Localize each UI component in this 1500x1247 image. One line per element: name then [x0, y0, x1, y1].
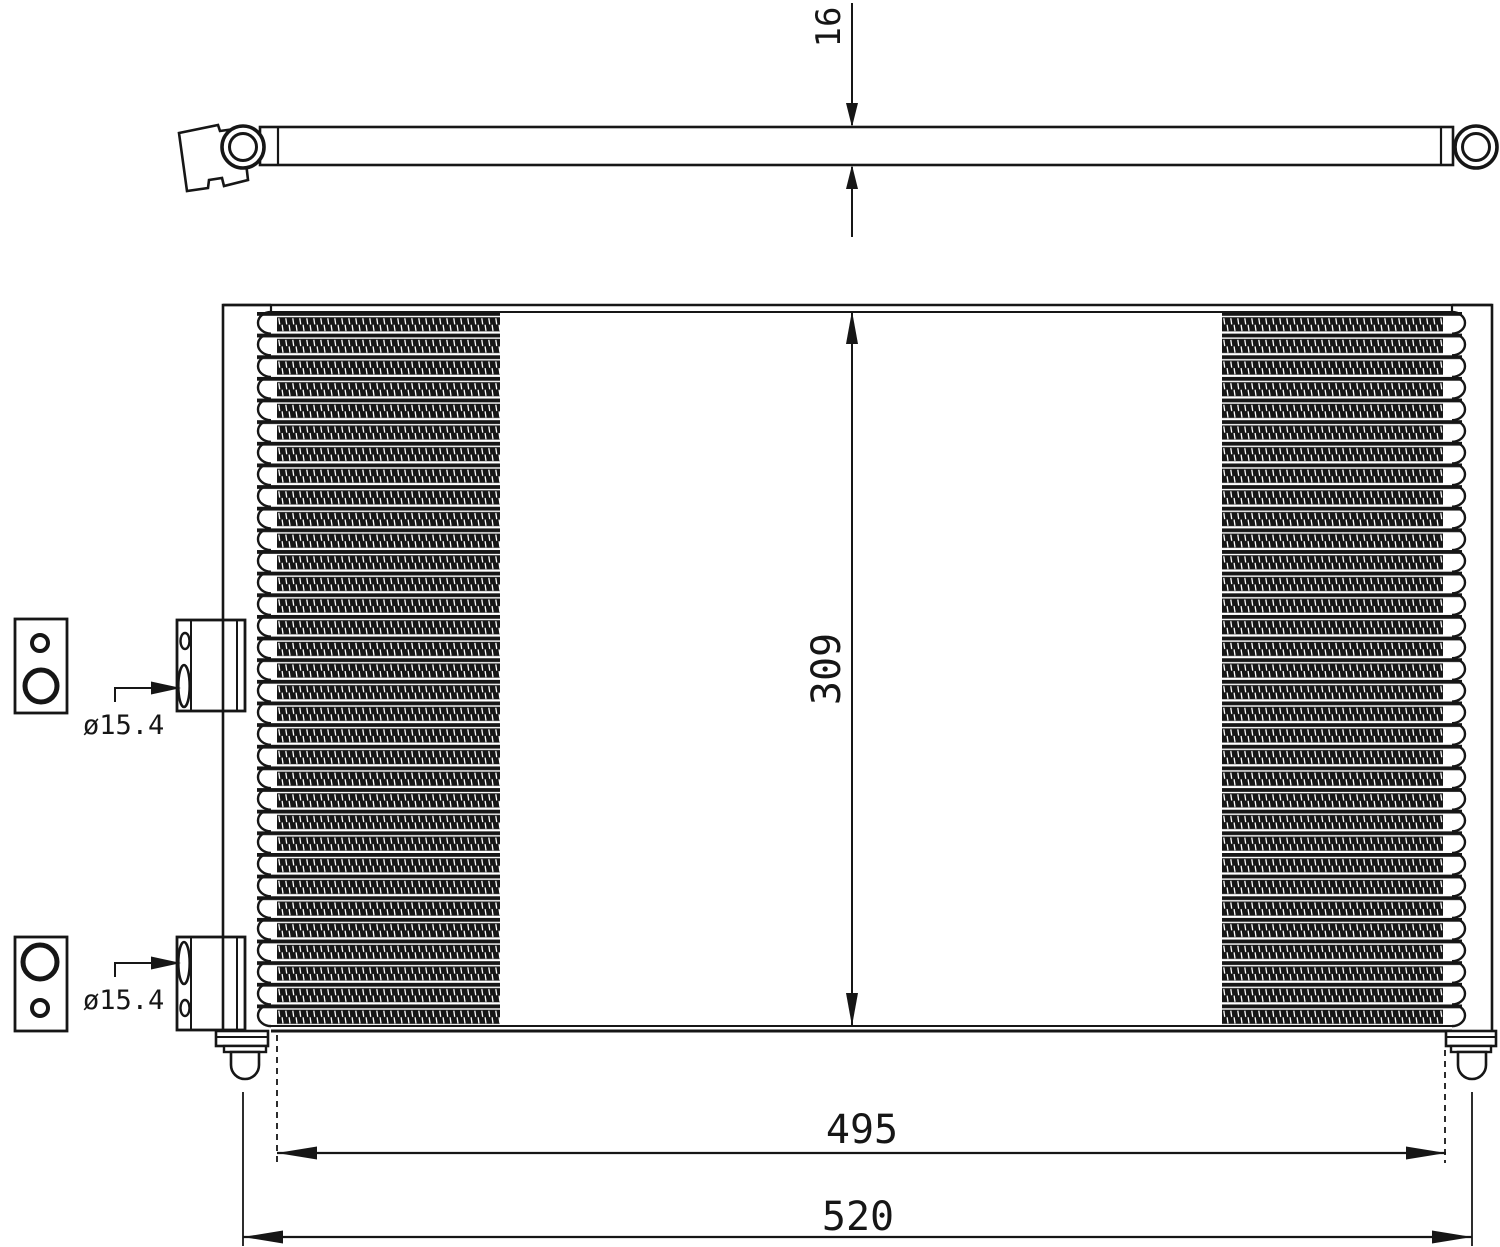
front-view	[216, 305, 1496, 1079]
right-fin-panel	[1222, 312, 1443, 1026]
upper-port-callout: ø15.4	[83, 682, 181, 742]
dim495-label: 495	[826, 1107, 898, 1153]
left-mounting-foot	[216, 1031, 268, 1079]
dim16-label: 16	[809, 7, 849, 48]
upper-plate-large-hole	[25, 670, 57, 702]
top-view-right-ring-bore	[1463, 134, 1490, 161]
top-view	[179, 125, 1497, 191]
dimension-core-height: 309	[804, 311, 858, 1026]
lower-block-small-port	[181, 1000, 190, 1016]
upper-port-label: ø15.4	[83, 710, 164, 741]
upper-port-block	[177, 620, 245, 711]
upper-block-large-port	[178, 665, 189, 707]
right-mounting-foot	[1446, 1031, 1496, 1079]
left-foot-grommet	[231, 1052, 259, 1079]
technical-drawing-page: 16	[0, 0, 1500, 1247]
dim16-up-arrow	[846, 165, 858, 189]
dim495-right-arrow	[1406, 1147, 1446, 1160]
dim520-right-arrow	[1432, 1231, 1472, 1244]
dim309-label: 309	[804, 633, 850, 705]
upper-plate-small-hole	[32, 635, 48, 651]
dimension-core-width: 495	[277, 1035, 1446, 1163]
dim520-left-arrow	[243, 1231, 283, 1244]
lower-port-callout: ø15.4	[83, 957, 181, 1017]
upper-fitting-plate	[15, 619, 67, 713]
top-view-bar	[260, 127, 1453, 165]
right-foot-grommet	[1458, 1052, 1486, 1079]
upper-callout-leader	[115, 688, 152, 702]
upper-block-small-port	[181, 633, 190, 649]
dim495-left-arrow	[277, 1147, 317, 1160]
lower-port-label: ø15.4	[83, 985, 164, 1016]
left-fin-panel	[277, 312, 500, 1026]
dim309-up-arrow	[846, 311, 858, 344]
dim16-down-arrow	[846, 103, 858, 127]
condenser-drawing: 16	[0, 0, 1500, 1247]
lower-fitting-plate	[15, 937, 67, 1031]
left-foot-bracket	[216, 1031, 268, 1046]
dimension-thickness: 16	[809, 3, 858, 237]
lower-callout-leader	[115, 963, 152, 977]
lower-plate-large-hole	[23, 945, 57, 979]
lower-plate-small-hole	[32, 1000, 48, 1016]
lower-port-block	[177, 937, 245, 1030]
right-foot-bracket	[1446, 1031, 1496, 1046]
top-view-left-ring-bore	[230, 134, 257, 161]
dim309-down-arrow	[846, 993, 858, 1026]
dim520-label: 520	[822, 1194, 894, 1240]
